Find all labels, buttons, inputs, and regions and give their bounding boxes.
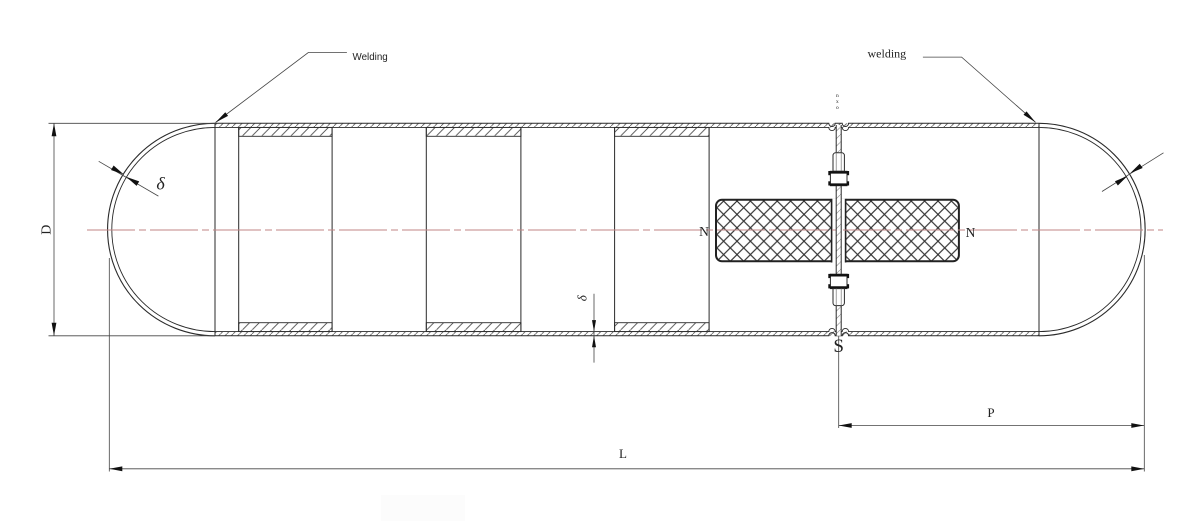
svg-text:N: N: [966, 225, 976, 240]
svg-text:δ: δ: [156, 174, 165, 194]
svg-text:o: o: [836, 105, 839, 111]
svg-text:L: L: [619, 446, 627, 461]
svg-text:δ: δ: [575, 294, 590, 301]
svg-text:D: D: [40, 225, 55, 235]
svg-text:welding: welding: [868, 47, 907, 61]
svg-text:Welding: Welding: [353, 52, 388, 63]
svg-text:S: S: [833, 336, 844, 357]
svg-text:N: N: [699, 224, 709, 239]
svg-text:P: P: [987, 405, 994, 420]
